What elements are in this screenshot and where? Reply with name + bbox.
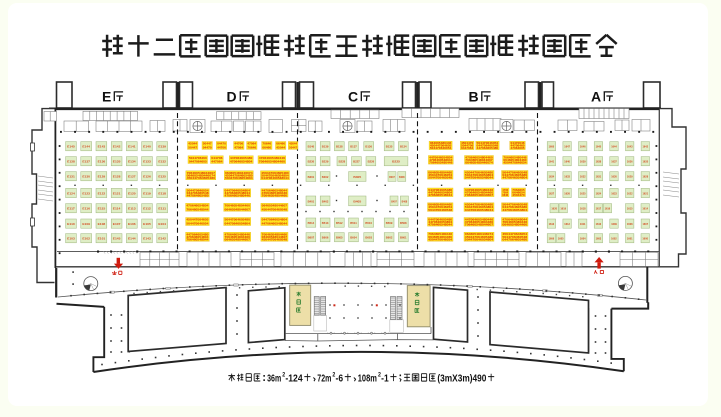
svg-text:E135: E135 bbox=[113, 160, 121, 164]
svg-text:-6: -6 bbox=[336, 373, 344, 385]
svg-text:36m: 36m bbox=[267, 373, 281, 385]
svg-text:B230: B230 bbox=[308, 160, 315, 164]
svg-text:706460548044607: 706460548044607 bbox=[465, 223, 494, 227]
svg-text:E104: E104 bbox=[158, 222, 166, 226]
svg-text:1627: 1627 bbox=[549, 191, 555, 195]
svg-text:4504470646054: 4504470646054 bbox=[503, 161, 527, 165]
svg-text:B604: B604 bbox=[350, 236, 357, 240]
svg-text:5044706460548: 5044706460548 bbox=[428, 176, 453, 180]
svg-text:E141: E141 bbox=[128, 145, 136, 149]
svg-text:E137: E137 bbox=[82, 160, 90, 164]
svg-text:E120: E120 bbox=[128, 191, 136, 195]
svg-text:1621: 1621 bbox=[643, 191, 649, 195]
svg-text:44706: 44706 bbox=[234, 142, 243, 146]
svg-text:1634: 1634 bbox=[549, 175, 555, 179]
svg-text:1623: 1623 bbox=[611, 191, 617, 195]
svg-text:1641: 1641 bbox=[549, 160, 555, 164]
svg-text:4504470: 4504470 bbox=[512, 193, 525, 197]
svg-text:E101: E101 bbox=[98, 237, 106, 241]
svg-text:B137: B137 bbox=[350, 145, 357, 149]
svg-text:504470646054804: 504470646054804 bbox=[465, 238, 494, 242]
svg-text:4706460548044: 4706460548044 bbox=[428, 193, 453, 197]
svg-text:0646054804460: 0646054804460 bbox=[502, 223, 528, 227]
svg-text:450447064605: 450447064605 bbox=[186, 218, 209, 222]
svg-text:04470: 04470 bbox=[203, 146, 212, 150]
svg-text:B512: B512 bbox=[336, 221, 343, 225]
svg-text:E113: E113 bbox=[128, 207, 136, 211]
svg-text:47064605480446: 47064605480446 bbox=[225, 193, 251, 197]
svg-text:470646054804: 470646054804 bbox=[230, 160, 253, 164]
svg-text:1639: 1639 bbox=[580, 160, 586, 164]
svg-text:064605480446074: 064605480446074 bbox=[465, 161, 493, 165]
svg-text:B601: B601 bbox=[400, 236, 407, 240]
svg-text:-124: -124 bbox=[285, 373, 303, 385]
svg-text:B508: B508 bbox=[400, 221, 407, 225]
svg-text:044706460548044: 044706460548044 bbox=[465, 176, 494, 180]
svg-text:06460548044607: 06460548044607 bbox=[262, 204, 288, 208]
svg-text:1640: 1640 bbox=[564, 160, 570, 164]
svg-text:504470646054: 504470646054 bbox=[186, 222, 209, 226]
svg-text:1631: 1631 bbox=[596, 175, 602, 179]
svg-text:1645: 1645 bbox=[596, 145, 602, 149]
svg-text:B307: B307 bbox=[389, 175, 395, 179]
svg-text:1624: 1624 bbox=[596, 191, 602, 195]
svg-text:B140: B140 bbox=[308, 145, 315, 149]
svg-text:5044706460: 5044706460 bbox=[189, 156, 208, 160]
svg-text:1600: 1600 bbox=[549, 145, 555, 149]
svg-text:1608: 1608 bbox=[627, 222, 633, 226]
svg-text:45044706460548: 45044706460548 bbox=[262, 207, 288, 211]
svg-text:E131: E131 bbox=[67, 175, 75, 179]
svg-text:E145: E145 bbox=[113, 237, 121, 241]
svg-text:C: C bbox=[348, 89, 358, 105]
svg-text:50447064605480: 50447064605480 bbox=[225, 218, 251, 222]
svg-text:B511: B511 bbox=[350, 221, 357, 225]
svg-text:5044706460548: 5044706460548 bbox=[428, 208, 453, 212]
svg-text:1647: 1647 bbox=[564, 145, 570, 149]
svg-text:1613: 1613 bbox=[549, 222, 555, 226]
svg-text:06460: 06460 bbox=[262, 146, 271, 150]
svg-text:706460548044607: 706460548044607 bbox=[465, 193, 494, 197]
svg-text:1620: 1620 bbox=[551, 207, 557, 211]
svg-text:E133: E133 bbox=[143, 160, 151, 164]
svg-text:1611: 1611 bbox=[580, 222, 586, 226]
svg-text:E125: E125 bbox=[158, 175, 166, 179]
svg-text:470646054804: 470646054804 bbox=[186, 204, 209, 208]
svg-text:A: A bbox=[591, 89, 601, 105]
svg-text:E142: E142 bbox=[113, 145, 121, 149]
svg-text:47064: 47064 bbox=[247, 142, 256, 146]
svg-text:B407: B407 bbox=[391, 199, 397, 203]
svg-text:1603: 1603 bbox=[596, 237, 602, 241]
svg-text:1629: 1629 bbox=[627, 175, 633, 179]
svg-text:1617: 1617 bbox=[596, 207, 602, 211]
svg-text:4470646054804: 4470646054804 bbox=[502, 208, 528, 212]
svg-text:1605: 1605 bbox=[558, 237, 564, 241]
svg-text:E138: E138 bbox=[67, 160, 75, 164]
svg-text:44706460548044: 44706460548044 bbox=[262, 222, 288, 226]
svg-text:E126: E126 bbox=[143, 175, 151, 179]
svg-text:1636: 1636 bbox=[627, 160, 633, 164]
svg-text:447064605480: 447064605480 bbox=[187, 193, 210, 197]
svg-text:1609: 1609 bbox=[611, 222, 617, 226]
svg-text:0447064: 0447064 bbox=[461, 146, 474, 150]
svg-text:E106: E106 bbox=[128, 222, 136, 226]
svg-text:1606: 1606 bbox=[549, 237, 555, 241]
svg-text:E143: E143 bbox=[98, 145, 106, 149]
svg-text:706460548044: 706460548044 bbox=[186, 207, 209, 211]
svg-text:B302: B302 bbox=[322, 175, 329, 179]
svg-text:1625: 1625 bbox=[580, 191, 586, 195]
svg-text:04470646054804: 04470646054804 bbox=[225, 222, 251, 226]
svg-text:B606: B606 bbox=[322, 236, 329, 240]
svg-text:70646: 70646 bbox=[247, 146, 256, 150]
svg-text:1610: 1610 bbox=[596, 222, 602, 226]
svg-text:06460: 06460 bbox=[276, 142, 285, 146]
svg-text:B510: B510 bbox=[365, 221, 372, 225]
svg-text:1600: 1600 bbox=[642, 237, 648, 241]
svg-text:E145: E145 bbox=[67, 145, 75, 149]
svg-text:B139: B139 bbox=[322, 145, 329, 149]
svg-text:E139: E139 bbox=[158, 145, 166, 149]
svg-text:1616: 1616 bbox=[605, 207, 611, 211]
svg-text:044706460548044: 044706460548044 bbox=[465, 208, 494, 212]
svg-text:E129: E129 bbox=[98, 175, 106, 179]
svg-text:B226: B226 bbox=[368, 160, 375, 164]
svg-text:450447064605480: 450447064605480 bbox=[187, 176, 216, 180]
svg-text:1630: 1630 bbox=[611, 175, 617, 179]
svg-text:E122: E122 bbox=[98, 191, 106, 195]
svg-text:B602: B602 bbox=[386, 236, 393, 240]
svg-text:E124: E124 bbox=[67, 191, 75, 195]
svg-text:706460548044: 706460548044 bbox=[186, 238, 209, 242]
svg-text:45044706460548: 45044706460548 bbox=[262, 238, 288, 242]
svg-text:1607: 1607 bbox=[643, 222, 649, 226]
svg-text:70646: 70646 bbox=[262, 142, 271, 146]
svg-text:E107: E107 bbox=[113, 222, 121, 226]
svg-text:B603: B603 bbox=[365, 236, 372, 240]
svg-text:E142: E142 bbox=[158, 237, 166, 241]
svg-text:1614: 1614 bbox=[642, 207, 648, 211]
svg-text:4706460548044: 4706460548044 bbox=[428, 223, 453, 227]
svg-text:447064: 447064 bbox=[211, 160, 223, 164]
svg-text:1643: 1643 bbox=[627, 145, 633, 149]
svg-text:50447: 50447 bbox=[289, 146, 298, 150]
svg-text:1646: 1646 bbox=[580, 145, 586, 149]
svg-text:1601: 1601 bbox=[627, 237, 633, 241]
svg-text:B301: B301 bbox=[308, 175, 315, 179]
svg-text:1618: 1618 bbox=[580, 207, 586, 211]
svg-text:E140: E140 bbox=[143, 145, 151, 149]
svg-text:E127: E127 bbox=[128, 175, 136, 179]
svg-text:E119: E119 bbox=[143, 191, 151, 195]
svg-text:1644: 1644 bbox=[611, 145, 617, 149]
svg-text:(3mX3m)490: (3mX3m)490 bbox=[437, 373, 486, 385]
svg-text:1602: 1602 bbox=[611, 237, 617, 241]
svg-text:1642: 1642 bbox=[643, 145, 649, 149]
svg-text:E123: E123 bbox=[82, 191, 90, 195]
svg-text:E115: E115 bbox=[98, 207, 106, 211]
svg-text:B405: B405 bbox=[353, 199, 361, 203]
svg-text:04470646054804: 04470646054804 bbox=[262, 218, 288, 222]
svg-text:45044: 45044 bbox=[289, 142, 298, 146]
svg-text:B228: B228 bbox=[339, 160, 346, 164]
svg-text:0646: 0646 bbox=[502, 193, 508, 197]
svg-text:E111: E111 bbox=[158, 207, 166, 211]
svg-text:E: E bbox=[102, 89, 111, 105]
svg-text:E128: E128 bbox=[113, 175, 121, 179]
svg-text:47064605: 47064605 bbox=[511, 146, 526, 150]
svg-text:044706460548044: 044706460548044 bbox=[261, 176, 289, 180]
svg-text:4470646054804: 4470646054804 bbox=[502, 176, 528, 180]
svg-text:1628: 1628 bbox=[643, 175, 649, 179]
svg-text:E103: E103 bbox=[67, 237, 75, 241]
svg-text:B605: B605 bbox=[336, 236, 343, 240]
svg-text:E105: E105 bbox=[143, 222, 151, 226]
svg-text:44706: 44706 bbox=[217, 146, 226, 150]
svg-text:1619: 1619 bbox=[560, 207, 566, 211]
svg-text:E136: E136 bbox=[98, 160, 106, 164]
svg-text:1615: 1615 bbox=[627, 207, 633, 211]
svg-text:B229: B229 bbox=[322, 160, 329, 164]
svg-text:1622: 1622 bbox=[627, 191, 633, 195]
svg-text:E109: E109 bbox=[82, 222, 90, 226]
svg-text:E144: E144 bbox=[128, 237, 136, 241]
svg-text:E143: E143 bbox=[143, 237, 151, 241]
svg-text:1632: 1632 bbox=[580, 175, 586, 179]
svg-text:E117: E117 bbox=[67, 207, 75, 211]
svg-text:B513: B513 bbox=[322, 221, 329, 225]
svg-text:45044: 45044 bbox=[188, 142, 197, 146]
svg-text:70646054804460: 70646054804460 bbox=[262, 193, 288, 197]
svg-text:4504470646054: 4504470646054 bbox=[428, 238, 453, 242]
svg-text:D: D bbox=[227, 89, 237, 105]
svg-text:B308: B308 bbox=[399, 175, 405, 179]
svg-text:B227: B227 bbox=[353, 160, 360, 164]
svg-text:-1: -1 bbox=[381, 373, 389, 385]
svg-text:044706: 044706 bbox=[211, 156, 223, 160]
svg-text:B402: B402 bbox=[322, 199, 329, 203]
svg-text:447064605480: 447064605480 bbox=[230, 156, 253, 160]
svg-text:E102: E102 bbox=[82, 237, 90, 241]
svg-text:B408: B408 bbox=[402, 199, 408, 203]
svg-text:B305: B305 bbox=[353, 175, 361, 179]
svg-text:1626: 1626 bbox=[564, 191, 570, 195]
svg-text:50447: 50447 bbox=[203, 142, 212, 146]
svg-text:47064605480446: 47064605480446 bbox=[259, 156, 286, 160]
svg-text:0447064605: 0447064605 bbox=[189, 160, 208, 164]
svg-text:B138: B138 bbox=[336, 145, 343, 149]
svg-text:E130: E130 bbox=[82, 175, 90, 179]
svg-text:1635: 1635 bbox=[643, 160, 649, 164]
svg-text:E134: E134 bbox=[128, 160, 136, 164]
svg-text:0447064605480: 0447064605480 bbox=[502, 238, 528, 242]
svg-text:B136: B136 bbox=[365, 145, 372, 149]
svg-text:504470646054: 504470646054 bbox=[430, 146, 452, 150]
svg-text:E118: E118 bbox=[158, 191, 166, 195]
svg-text:06460548044607: 06460548044607 bbox=[225, 238, 251, 242]
svg-text:447064605480: 447064605480 bbox=[477, 146, 499, 150]
svg-text:E144: E144 bbox=[82, 145, 90, 149]
svg-text:45044: 45044 bbox=[276, 146, 285, 150]
svg-text:E116: E116 bbox=[82, 207, 90, 211]
svg-text:B: B bbox=[469, 89, 479, 105]
svg-text:B514: B514 bbox=[308, 221, 315, 225]
svg-text:E132: E132 bbox=[158, 160, 166, 164]
svg-text:E121: E121 bbox=[113, 191, 121, 195]
svg-text:B225: B225 bbox=[392, 160, 400, 164]
svg-text:E110: E110 bbox=[67, 222, 75, 226]
svg-text:108m: 108m bbox=[358, 373, 377, 385]
svg-text:47064: 47064 bbox=[234, 146, 243, 150]
svg-text:06460548044607: 06460548044607 bbox=[225, 207, 251, 211]
svg-text:1612: 1612 bbox=[564, 222, 570, 226]
svg-text:B401: B401 bbox=[308, 199, 315, 203]
svg-text:B135: B135 bbox=[386, 145, 393, 149]
svg-text:E112: E112 bbox=[143, 207, 151, 211]
svg-text:B134: B134 bbox=[400, 145, 407, 149]
svg-text:1633: 1633 bbox=[564, 175, 570, 179]
svg-text:7064605480446: 7064605480446 bbox=[429, 161, 453, 165]
svg-text:1604: 1604 bbox=[580, 237, 586, 241]
svg-text:70646054804460: 70646054804460 bbox=[225, 204, 251, 208]
svg-text:70646054804460: 70646054804460 bbox=[259, 160, 286, 164]
svg-text:72m: 72m bbox=[317, 373, 331, 385]
svg-text:E114: E114 bbox=[113, 207, 121, 211]
svg-text:B509: B509 bbox=[386, 221, 393, 225]
svg-text:50447: 50447 bbox=[188, 146, 197, 150]
svg-text:E108: E108 bbox=[98, 222, 106, 226]
svg-text:B607: B607 bbox=[308, 236, 315, 240]
svg-text:1637: 1637 bbox=[611, 160, 617, 164]
svg-text:1638: 1638 bbox=[596, 160, 602, 164]
svg-text:504470646054804: 504470646054804 bbox=[225, 176, 253, 180]
svg-text:04470: 04470 bbox=[217, 142, 226, 146]
